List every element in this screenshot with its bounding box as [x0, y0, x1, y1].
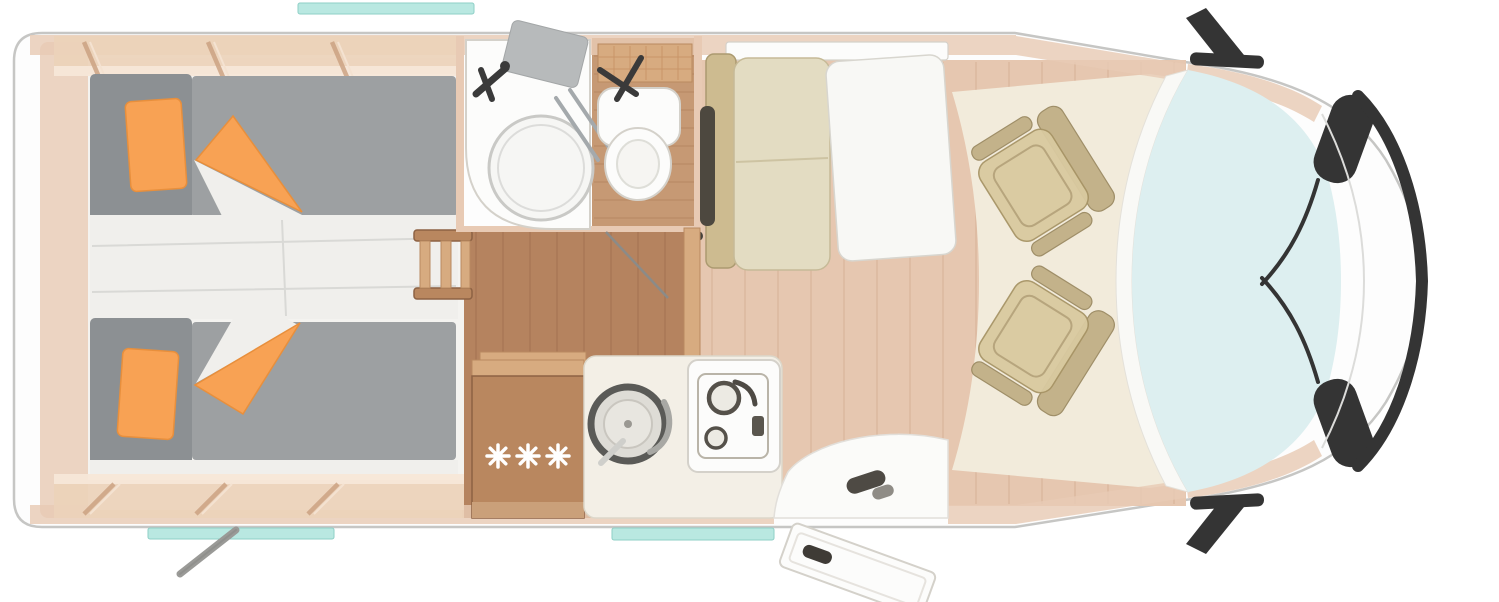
kitchen-hob — [688, 360, 780, 472]
kitchen-partition — [684, 228, 700, 362]
bed-middle-linen — [90, 215, 458, 319]
bench-cushion — [734, 58, 830, 270]
fridge-base — [472, 502, 584, 518]
side-bench — [700, 54, 830, 270]
bed-top-pillow-icon — [125, 98, 187, 192]
hob-knob-icon — [752, 416, 764, 436]
shower — [466, 19, 612, 229]
sink-drain — [624, 420, 632, 428]
dinette-table — [825, 54, 957, 262]
bathroom-wall-left — [456, 36, 464, 230]
kitchen-sink — [591, 387, 669, 463]
wall-rear — [40, 42, 90, 518]
freezer-stars — [487, 445, 569, 467]
entry-door-open — [778, 522, 937, 602]
motorhome-floorplan — [0, 0, 1499, 602]
window-bottom-left — [148, 528, 334, 539]
wall-bottom-right — [948, 505, 1016, 524]
toilet-bowl — [617, 140, 659, 188]
bench-slot — [700, 106, 715, 226]
window-bottom-entry — [612, 528, 774, 540]
refrigerator — [472, 360, 584, 518]
hob-burner-small — [706, 428, 726, 448]
mirror-top-icon — [1186, 8, 1264, 69]
bed-bottom-pillow-icon — [117, 348, 179, 440]
hob-burner-large — [709, 383, 739, 413]
floorplan-stage — [0, 0, 1499, 602]
bed-ladder — [414, 230, 472, 299]
mirror-bottom-icon — [1186, 493, 1264, 554]
window-top — [298, 3, 474, 14]
overhead-cabinets-bottom — [54, 474, 464, 518]
fridge-top-face — [472, 360, 584, 376]
